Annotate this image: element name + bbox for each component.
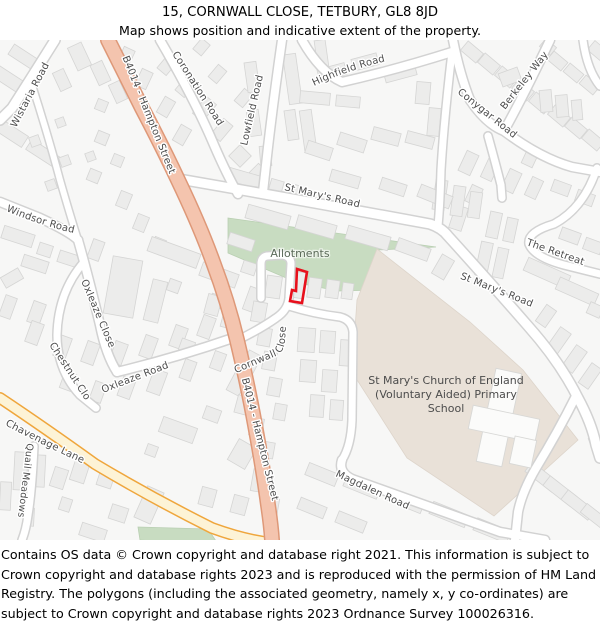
building <box>321 370 337 393</box>
page-title: 15, CORNWALL CLOSE, TETBURY, GL8 8JD <box>0 5 600 20</box>
building <box>539 90 553 113</box>
building <box>297 327 316 352</box>
building <box>300 91 331 106</box>
building <box>273 403 288 421</box>
building <box>415 81 431 104</box>
area-label-allotments: Allotments <box>270 247 329 260</box>
building <box>555 95 569 118</box>
building <box>309 395 325 418</box>
footer-attribution: Contains OS data © Crown copyright and d… <box>0 543 600 623</box>
building <box>307 277 323 299</box>
building <box>341 282 354 299</box>
building <box>265 275 283 299</box>
building <box>329 400 343 421</box>
building <box>571 100 583 121</box>
school-label-line2: (Voluntary Aided) Primary <box>375 388 517 401</box>
building <box>267 377 283 397</box>
map-canvas[interactable]: Wistaria Road B4014 - Hampton Street B40… <box>0 40 600 540</box>
school-label-line3: School <box>428 402 465 415</box>
building <box>0 482 12 511</box>
building <box>319 331 335 354</box>
page-subtitle: Map shows position and indicative extent… <box>0 23 600 38</box>
building <box>299 359 316 382</box>
map-container: Wistaria Road B4014 - Hampton Street B40… <box>0 40 600 540</box>
school-label-line1: St Mary's Church of England <box>368 374 523 387</box>
building <box>336 95 361 108</box>
building <box>325 279 340 299</box>
map-header: 15, CORNWALL CLOSE, TETBURY, GL8 8JD Map… <box>0 0 600 40</box>
